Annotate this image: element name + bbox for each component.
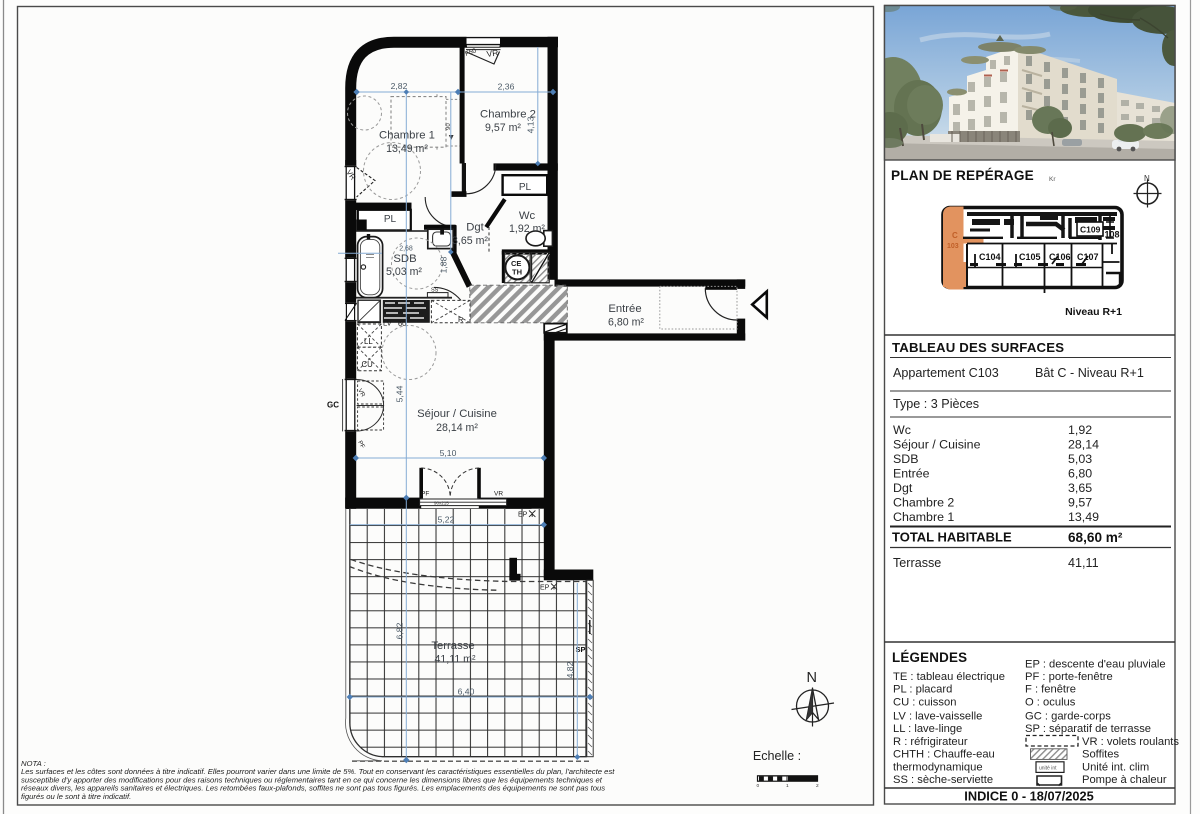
svg-text:Terrasse: Terrasse	[431, 640, 474, 652]
svg-text:5,03 m²: 5,03 m²	[386, 266, 422, 278]
svg-text:Terrasse: Terrasse	[893, 556, 941, 570]
svg-text:INDICE 0 - 18/07/2025: INDICE 0 - 18/07/2025	[964, 789, 1093, 804]
svg-text:103: 103	[947, 243, 959, 250]
svg-text:Type : 3 Pièces: Type : 3 Pièces	[893, 397, 979, 411]
svg-text:VR: VR	[494, 491, 503, 498]
svg-text:EP: EP	[518, 512, 528, 519]
svg-text:5,22: 5,22	[438, 515, 455, 525]
svg-text:GC: GC	[327, 401, 339, 410]
svg-text:6,40: 6,40	[458, 687, 475, 697]
svg-text:PL : placard: PL : placard	[893, 684, 952, 696]
svg-text:41,11 m²: 41,11 m²	[434, 654, 475, 666]
svg-text:Séjour / Cuisine: Séjour / Cuisine	[893, 438, 981, 452]
svg-text:PL: PL	[384, 214, 397, 225]
svg-text:VR: VR	[486, 47, 499, 59]
svg-text:CU : cuisson: CU : cuisson	[893, 696, 956, 708]
svg-text:13,49 m²: 13,49 m²	[386, 143, 428, 155]
svg-text:Entrée: Entrée	[608, 303, 641, 315]
svg-text:Chambre 2: Chambre 2	[480, 109, 536, 121]
svg-text:1,92 m²: 1,92 m²	[509, 223, 545, 235]
svg-text:1,88: 1,88	[439, 256, 449, 273]
svg-text:PLAN DE REPÉRAGE: PLAN DE REPÉRAGE	[891, 168, 1034, 183]
svg-text:TOTAL HABITABLE: TOTAL HABITABLE	[892, 530, 1012, 545]
svg-text:Chambre 2: Chambre 2	[893, 496, 954, 510]
svg-text:Soffites: Soffites	[1082, 749, 1120, 761]
svg-text:Wc: Wc	[893, 423, 911, 437]
svg-text:2,68: 2,68	[399, 246, 413, 253]
svg-text:Kr: Kr	[1049, 176, 1056, 183]
svg-text:Echelle :: Echelle :	[753, 749, 801, 763]
svg-text:LÉGENDES: LÉGENDES	[892, 650, 967, 665]
svg-text:unité int: unité int	[1039, 766, 1057, 772]
svg-text:TABLEAU DES SURFACES: TABLEAU DES SURFACES	[892, 340, 1064, 355]
svg-text:SS: SS	[431, 288, 439, 294]
svg-text:EP : descente d'eau pluviale: EP : descente d'eau pluviale	[1025, 658, 1166, 670]
svg-text:LV : lave-vaisselle: LV : lave-vaisselle	[893, 711, 982, 723]
svg-text:Dgt: Dgt	[466, 222, 484, 234]
svg-text:28,14: 28,14	[1068, 438, 1099, 452]
svg-text:CHTH : Chauffe-eau: CHTH : Chauffe-eau	[893, 749, 995, 761]
svg-text:Pompe à chaleur: Pompe à chaleur	[1082, 774, 1167, 786]
svg-text:SS : sèche-serviette: SS : sèche-serviette	[893, 774, 993, 786]
svg-text:0: 0	[757, 783, 760, 789]
svg-text:28,14 m²: 28,14 m²	[436, 422, 478, 434]
svg-text:90x215: 90x215	[434, 501, 449, 506]
svg-text:F : fenêtre: F : fenêtre	[1025, 684, 1076, 696]
svg-text:68,60 m²: 68,60 m²	[1068, 530, 1123, 545]
svg-text:41,11: 41,11	[1068, 556, 1099, 570]
svg-text:5,10: 5,10	[440, 448, 457, 458]
svg-text:3,65 m²: 3,65 m²	[452, 235, 488, 247]
svg-text:Séjour / Cuisine: Séjour / Cuisine	[417, 408, 497, 420]
svg-text:thermodynamique: thermodynamique	[893, 761, 983, 773]
svg-text:GC : garde-corps: GC : garde-corps	[1025, 711, 1111, 723]
svg-text:5,03: 5,03	[1068, 452, 1092, 466]
svg-text:PF: PF	[421, 491, 429, 498]
svg-text:13,49: 13,49	[1068, 510, 1099, 524]
svg-text:SDB: SDB	[893, 452, 918, 466]
svg-text:1: 1	[786, 783, 789, 789]
svg-text:PF : porte-fenêtre: PF : porte-fenêtre	[1025, 671, 1113, 683]
svg-text:SP : séparatif de terrasse: SP : séparatif de terrasse	[1025, 723, 1151, 735]
svg-text:TE : tableau électrique: TE : tableau électrique	[893, 671, 1005, 683]
svg-text:6,80: 6,80	[1068, 467, 1092, 481]
svg-text:CU: CU	[362, 360, 374, 369]
svg-text:1,92: 1,92	[1068, 423, 1092, 437]
svg-text:TH: TH	[512, 268, 522, 277]
svg-text:Chambre 1: Chambre 1	[893, 510, 954, 524]
svg-text:5,44: 5,44	[395, 385, 405, 402]
svg-text:6,80 m²: 6,80 m²	[608, 317, 644, 329]
svg-text:2,36: 2,36	[498, 82, 515, 92]
svg-text:9,57: 9,57	[1068, 496, 1092, 510]
svg-text:EP: EP	[540, 585, 550, 592]
svg-text:Entrée: Entrée	[893, 467, 930, 481]
svg-text:LV: LV	[383, 319, 392, 328]
svg-text:6,82: 6,82	[395, 622, 405, 639]
svg-text:PL: PL	[519, 182, 532, 193]
svg-text:LL: LL	[364, 337, 373, 346]
svg-text:LL : lave-linge: LL : lave-linge	[893, 723, 962, 735]
svg-text:3,65: 3,65	[1068, 481, 1092, 495]
svg-text:VR : volets roulants: VR : volets roulants	[1082, 736, 1179, 748]
svg-text:2,82: 2,82	[391, 81, 408, 91]
svg-text:2: 2	[816, 783, 819, 789]
svg-text:Niveau R+1: Niveau R+1	[1065, 306, 1122, 318]
svg-text:SDB: SDB	[393, 253, 416, 265]
svg-text:Wc: Wc	[519, 210, 536, 222]
svg-text:figurés ou le sont à titre ind: figurés ou le sont à titre indicatif.	[21, 792, 131, 801]
svg-text:Dgt: Dgt	[893, 481, 913, 495]
svg-text:R: R	[458, 315, 464, 324]
svg-text:C109: C109	[1080, 225, 1101, 235]
svg-text:Appartement C103: Appartement C103	[893, 366, 999, 380]
svg-text:C: C	[952, 231, 958, 240]
svg-text:Bât C - Niveau R+1: Bât C - Niveau R+1	[1035, 366, 1144, 380]
svg-text:O : oculus: O : oculus	[1025, 696, 1076, 708]
svg-text:C105: C105	[1019, 252, 1041, 262]
svg-text:R : réfrigirateur: R : réfrigirateur	[893, 736, 968, 748]
svg-text:9,57 m²: 9,57 m²	[485, 122, 521, 134]
svg-text:Chambre 1: Chambre 1	[379, 130, 435, 142]
svg-text:C104: C104	[979, 252, 1001, 262]
svg-text:C106: C106	[1049, 252, 1071, 262]
svg-text:4,82: 4,82	[565, 661, 575, 678]
svg-text:Unité int. clim: Unité int. clim	[1082, 761, 1149, 773]
svg-text:N: N	[807, 670, 817, 686]
